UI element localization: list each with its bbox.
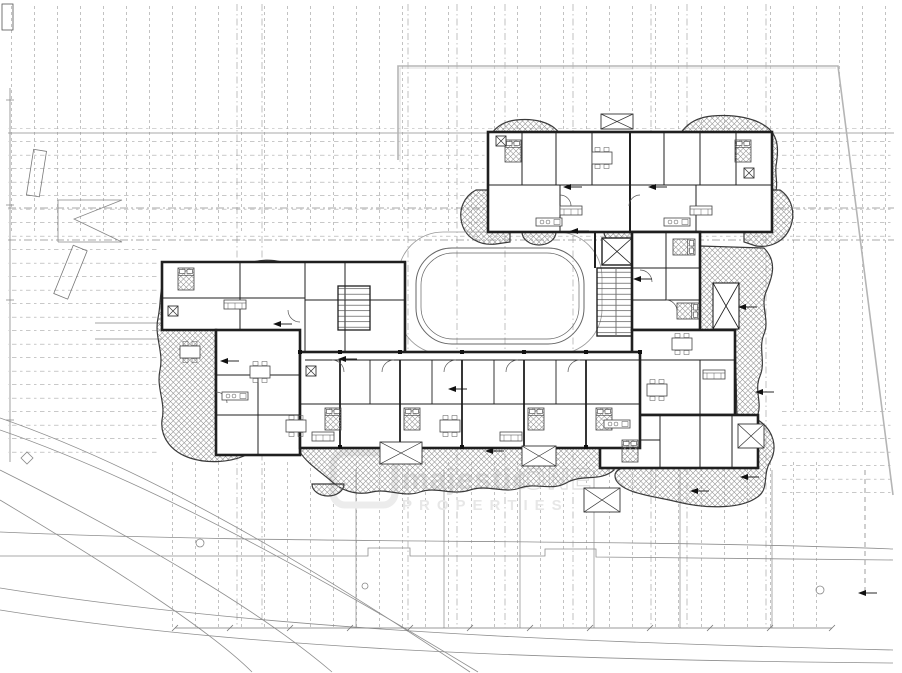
floorplan-canvas: majestic ONE PROPERTIES [0, 0, 902, 673]
north-wing [488, 132, 772, 232]
pool-courtyard [398, 232, 602, 354]
south-row [300, 352, 640, 448]
floorplan-sheet: majestic ONE PROPERTIES [0, 0, 902, 673]
stair-core-left [338, 286, 370, 330]
watermark-line2: PROPERTIES [402, 497, 569, 514]
hgrid-band-left [8, 240, 160, 462]
pool-outline [416, 248, 584, 344]
hgrid-band-right [780, 400, 893, 500]
grid-band-right [775, 232, 893, 410]
